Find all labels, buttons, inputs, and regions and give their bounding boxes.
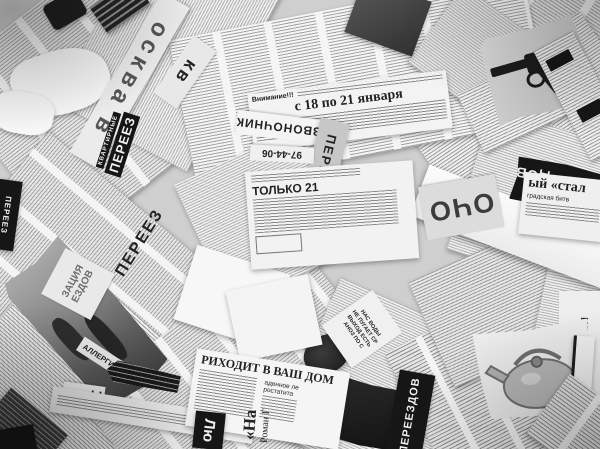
pereez-left-text: ПЕРЕЕЗ <box>0 195 13 234</box>
bottom-left-black-corner <box>0 424 38 449</box>
ocho-text: ОЧО <box>425 186 496 228</box>
small-ad-box <box>576 98 600 123</box>
tolko21-advert: ТОЛЬКО 21 <box>245 160 419 269</box>
newspaper-collage-photo: осква в кв Внимание!!! с 18 по 21 января… <box>0 0 600 449</box>
lyu-text: Лю <box>199 418 218 443</box>
coupon-box <box>255 233 302 254</box>
phone-text: 97-44-06 <box>262 147 303 160</box>
phone-fragment: 97-44-06 <box>250 144 315 163</box>
lyu-black-box: Лю <box>192 411 226 449</box>
stal-headline-scrap: ый «стал градская битв <box>518 172 600 242</box>
roman-text: Роман Г <box>258 408 271 443</box>
small-ad-box <box>545 49 574 72</box>
pereezdov-vert-text: ПЕРЕЕЗДОВ <box>397 377 422 449</box>
roman-vertical-fragment: «На Роман Г <box>232 379 278 449</box>
nas-quote-text: «На <box>238 409 260 441</box>
